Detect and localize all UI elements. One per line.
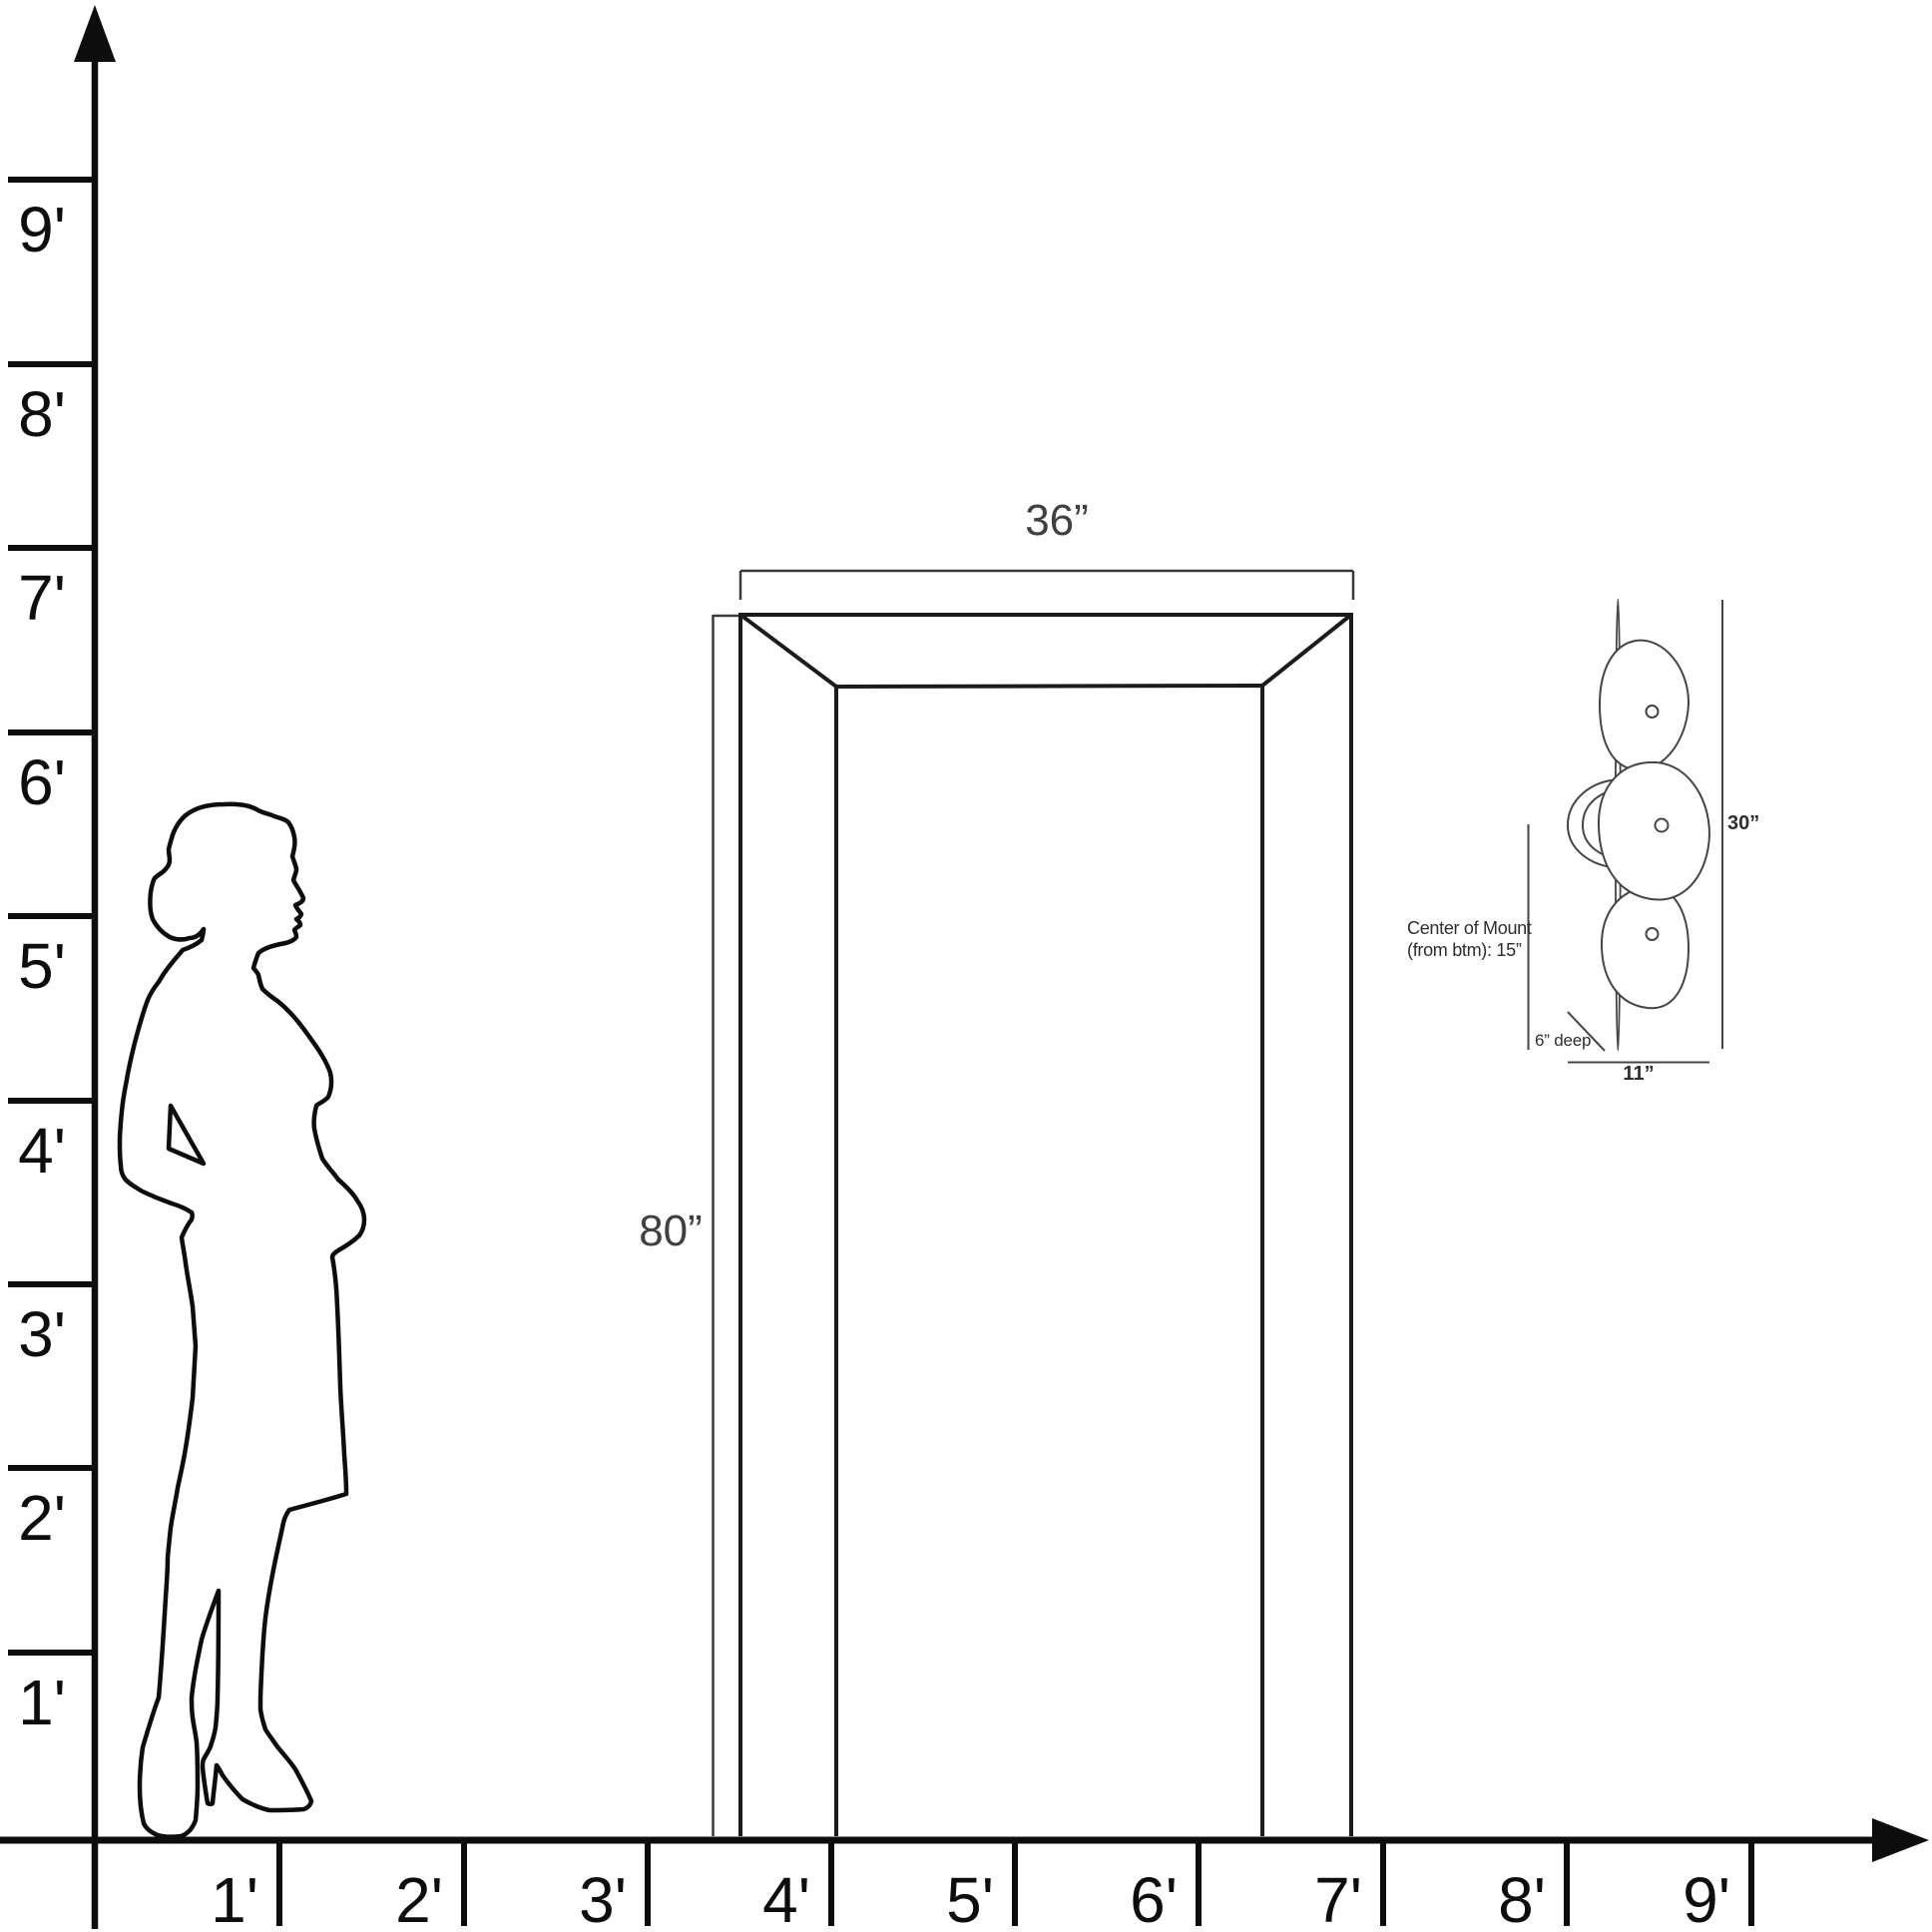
svg-text:2': 2' bbox=[18, 1482, 66, 1554]
svg-text:36”: 36” bbox=[1025, 496, 1089, 545]
svg-text:6” deep: 6” deep bbox=[1535, 1031, 1591, 1050]
svg-text:9': 9' bbox=[1683, 1864, 1730, 1932]
svg-text:6': 6' bbox=[1130, 1864, 1178, 1932]
svg-text:7': 7' bbox=[18, 562, 66, 634]
svg-text:8': 8' bbox=[1498, 1864, 1546, 1932]
svg-text:3': 3' bbox=[18, 1298, 66, 1370]
svg-text:4': 4' bbox=[18, 1115, 66, 1187]
svg-text:9': 9' bbox=[18, 194, 66, 265]
svg-text:80”: 80” bbox=[639, 1207, 703, 1255]
svg-text:1': 1' bbox=[18, 1667, 66, 1738]
svg-text:11”: 11” bbox=[1623, 1063, 1654, 1085]
svg-text:(from btm): 15”: (from btm): 15” bbox=[1407, 940, 1522, 960]
svg-text:2': 2' bbox=[395, 1864, 443, 1932]
svg-text:8': 8' bbox=[18, 378, 66, 450]
svg-text:30”: 30” bbox=[1727, 812, 1759, 834]
svg-text:7': 7' bbox=[1314, 1864, 1362, 1932]
svg-text:3': 3' bbox=[579, 1864, 627, 1932]
svg-text:4': 4' bbox=[762, 1864, 810, 1932]
svg-text:6': 6' bbox=[18, 746, 66, 818]
svg-text:1': 1' bbox=[211, 1864, 258, 1932]
svg-text:5': 5' bbox=[946, 1864, 994, 1932]
svg-text:Center of Mount: Center of Mount bbox=[1407, 918, 1532, 938]
svg-text:5': 5' bbox=[18, 930, 66, 1002]
